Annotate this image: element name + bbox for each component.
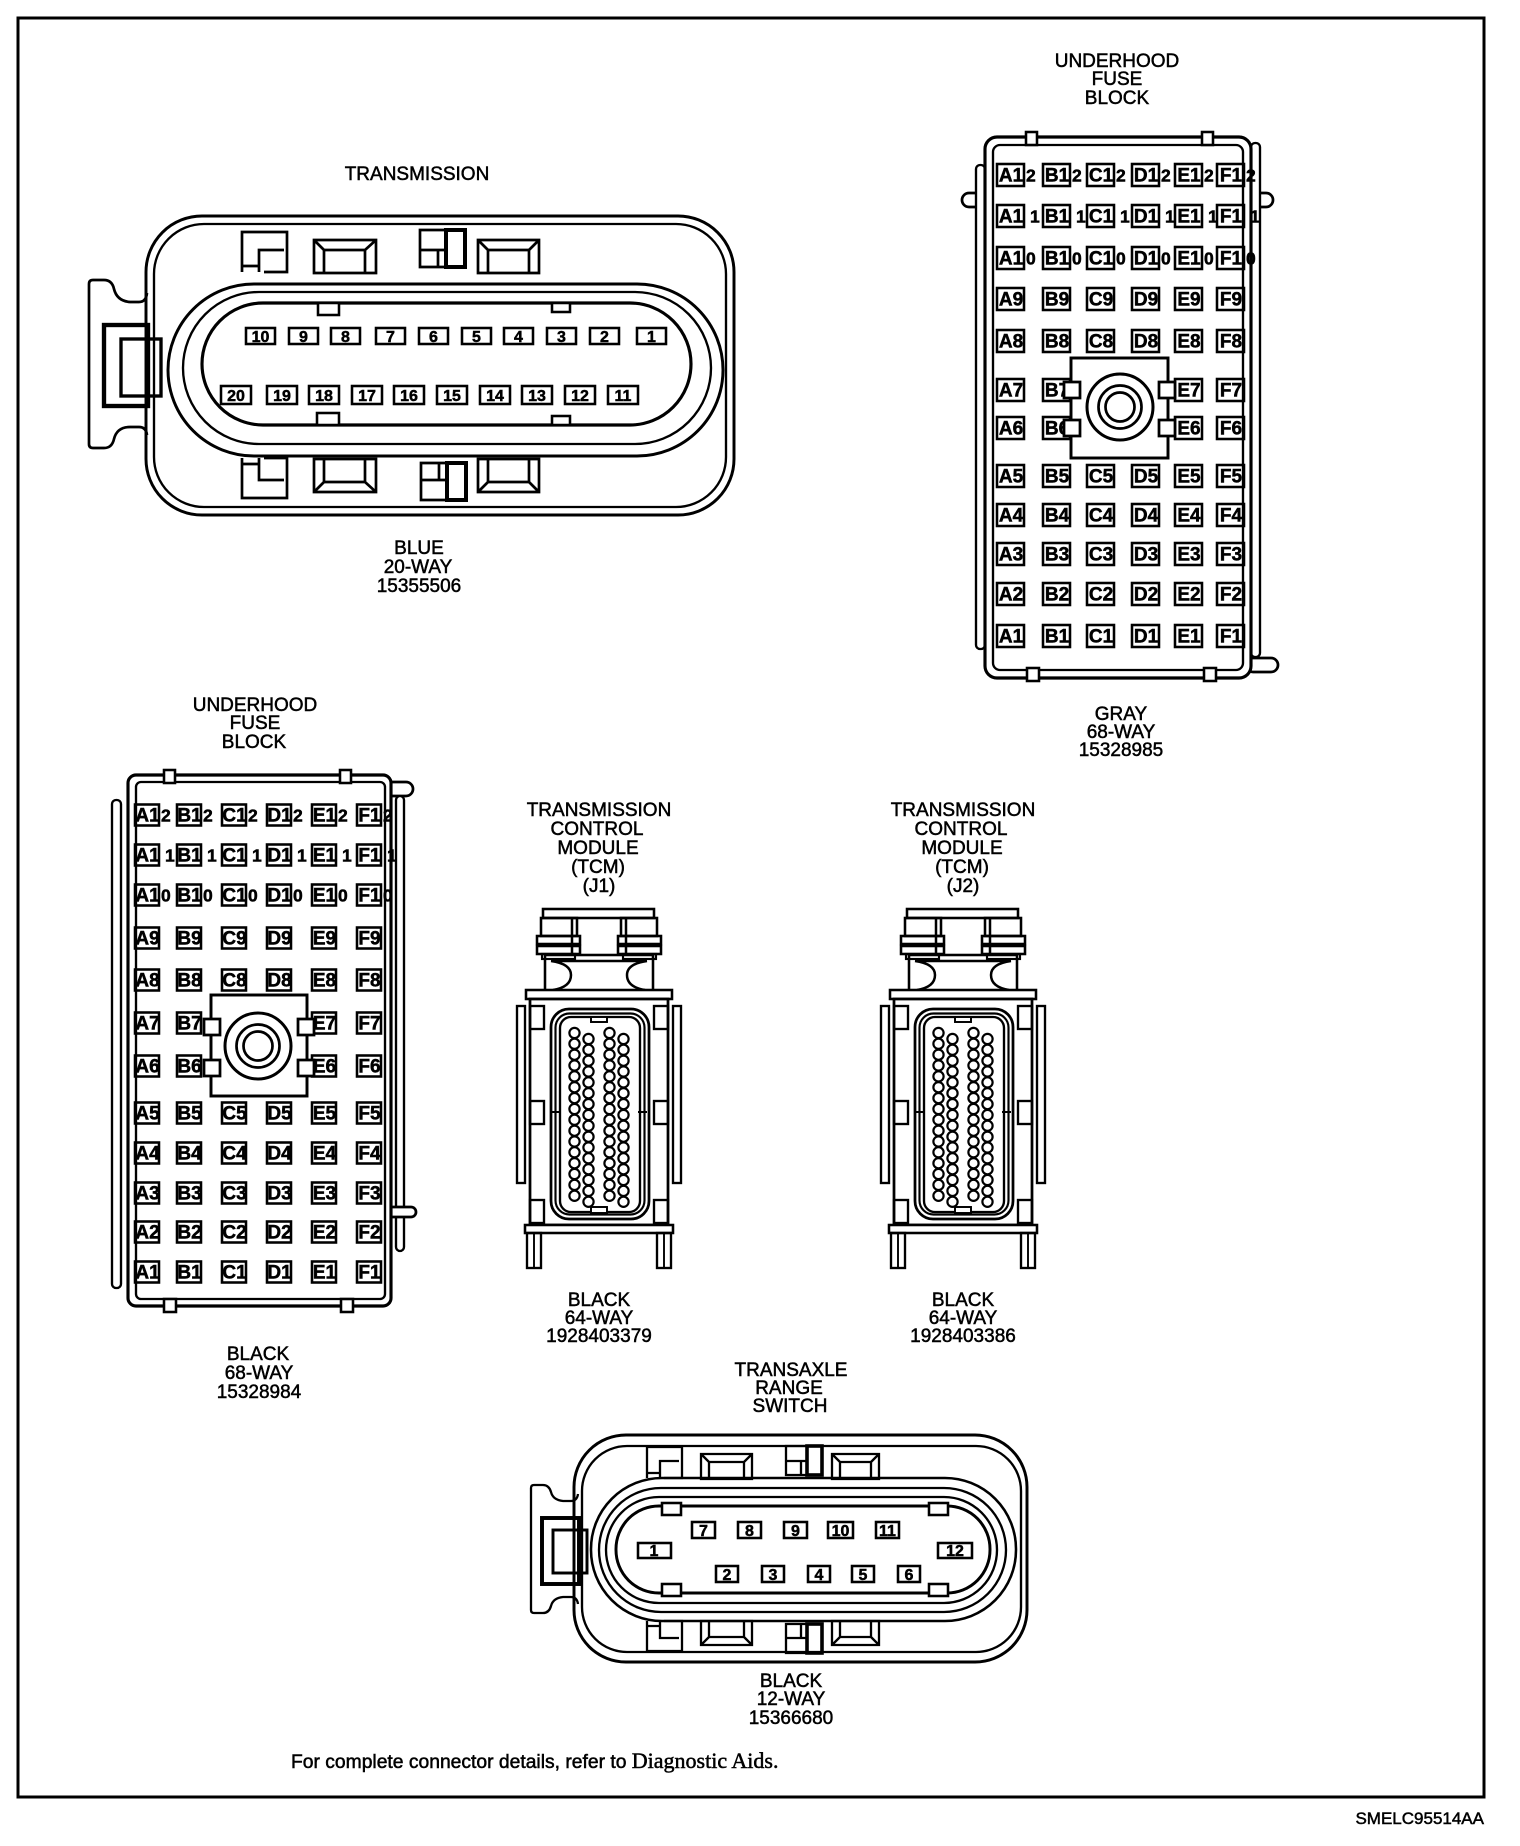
svg-text:E1: E1 [1177,627,1201,648]
svg-text:A1: A1 [999,166,1024,187]
svg-text:2: 2 [383,806,393,826]
svg-text:A3: A3 [135,1184,159,1205]
svg-text:B3: B3 [177,1184,201,1205]
svg-text:8: 8 [745,1523,754,1540]
svg-text:F1: F1 [358,806,381,827]
svg-text:1: 1 [1076,207,1086,227]
svg-text:C1: C1 [222,886,247,907]
svg-text:2: 2 [293,806,303,826]
svg-text:D8: D8 [1134,332,1158,353]
svg-text:BLOCK: BLOCK [222,732,287,753]
svg-text:5: 5 [859,1567,868,1584]
svg-text:B5: B5 [1045,467,1070,488]
svg-text:A8: A8 [999,332,1023,353]
svg-text:D1: D1 [1134,249,1159,270]
svg-text:D1: D1 [267,886,292,907]
svg-text:TRANSMISSION: TRANSMISSION [891,800,1036,821]
svg-text:A2: A2 [999,585,1023,606]
svg-text:For complete connector details: For complete connector details, refer to… [291,1748,778,1773]
svg-text:F1: F1 [1220,249,1243,270]
svg-text:A1: A1 [135,846,160,867]
svg-text:11: 11 [615,388,632,405]
svg-text:2: 2 [338,806,348,826]
svg-text:B1: B1 [177,846,202,867]
svg-text:E3: E3 [313,1184,336,1205]
svg-text:12-WAY: 12-WAY [757,1689,826,1710]
svg-text:2: 2 [161,806,171,826]
svg-text:1: 1 [1120,207,1130,227]
svg-text:2: 2 [1026,166,1036,186]
svg-text:C8: C8 [222,971,246,992]
svg-text:12: 12 [571,388,589,405]
svg-text:1: 1 [207,846,217,866]
svg-text:11: 11 [879,1523,896,1540]
svg-text:2: 2 [1116,166,1126,186]
svg-text:F7: F7 [1220,381,1242,402]
svg-text:B1: B1 [177,806,202,827]
svg-text:E1: E1 [1177,207,1201,228]
svg-text:D2: D2 [1134,585,1158,606]
svg-text:17: 17 [358,388,376,405]
svg-text:0: 0 [1072,249,1082,269]
svg-text:0: 0 [1204,249,1214,269]
svg-text:(J2): (J2) [947,876,980,897]
svg-text:C1: C1 [1089,627,1114,648]
svg-text:B6: B6 [177,1057,201,1078]
svg-text:F6: F6 [1220,419,1242,440]
svg-text:C1: C1 [222,846,247,867]
svg-text:E9: E9 [1177,290,1200,311]
svg-text:D3: D3 [267,1184,291,1205]
svg-text:MODULE: MODULE [557,838,638,859]
svg-text:BLACK: BLACK [227,1344,290,1365]
svg-text:F5: F5 [1220,467,1243,488]
svg-text:E1: E1 [313,846,337,867]
svg-text:A1: A1 [999,249,1024,270]
svg-text:F4: F4 [358,1144,381,1165]
svg-text:D4: D4 [267,1144,292,1165]
svg-text:18: 18 [315,388,333,405]
svg-text:(TCM): (TCM) [935,857,989,878]
svg-text:A1: A1 [135,1263,160,1284]
svg-text:2: 2 [723,1567,732,1584]
svg-text:D2: D2 [267,1223,291,1244]
svg-text:A5: A5 [999,467,1024,488]
svg-text:E2: E2 [1177,585,1200,606]
svg-text:20-WAY: 20-WAY [384,557,453,578]
svg-text:2: 2 [248,806,258,826]
svg-text:0: 0 [161,886,171,906]
svg-text:FUSE: FUSE [1092,69,1143,90]
svg-text:B1: B1 [177,1263,202,1284]
svg-text:A7: A7 [135,1014,159,1035]
svg-text:C1: C1 [1089,166,1114,187]
svg-text:F3: F3 [1220,545,1242,566]
svg-text:A2: A2 [135,1223,159,1244]
svg-text:0: 0 [1116,249,1126,269]
svg-text:A1: A1 [999,207,1024,228]
svg-text:TRANSMISSION: TRANSMISSION [527,800,672,821]
svg-text:15355506: 15355506 [377,576,462,597]
svg-text:7: 7 [386,329,395,346]
svg-text:C1: C1 [1089,207,1114,228]
svg-text:SMELC95514AA: SMELC95514AA [1355,1809,1484,1828]
svg-text:(TCM): (TCM) [571,857,625,878]
svg-text:6: 6 [905,1567,914,1584]
svg-text:B1: B1 [1045,166,1070,187]
svg-text:B8: B8 [177,971,201,992]
svg-text:D5: D5 [267,1104,292,1125]
svg-text:C1: C1 [222,1263,247,1284]
svg-text:A6: A6 [999,419,1023,440]
svg-text:D1: D1 [267,1263,292,1284]
svg-text:BLOCK: BLOCK [1085,88,1150,109]
svg-text:F6: F6 [358,1057,380,1078]
svg-text:E6: E6 [313,1057,336,1078]
svg-text:F5: F5 [358,1104,381,1125]
svg-text:D5: D5 [1134,467,1159,488]
svg-text:D9: D9 [1134,290,1158,311]
svg-text:B1: B1 [1045,249,1070,270]
svg-text:0: 0 [338,886,348,906]
svg-text:A9: A9 [135,929,159,950]
svg-text:D3: D3 [1134,545,1158,566]
svg-text:0: 0 [1026,249,1036,269]
svg-text:B1: B1 [1045,207,1070,228]
svg-text:1: 1 [342,846,352,866]
svg-text:2: 2 [600,329,609,346]
svg-text:1: 1 [297,846,307,866]
svg-text:1: 1 [650,1543,659,1560]
svg-text:A6: A6 [135,1057,159,1078]
svg-text:C1: C1 [222,806,247,827]
svg-text:1: 1 [1030,207,1040,227]
svg-text:D1: D1 [267,806,292,827]
svg-text:19: 19 [273,388,291,405]
svg-text:2: 2 [1246,166,1256,186]
svg-text:A1: A1 [135,886,160,907]
svg-text:D1: D1 [1134,166,1159,187]
svg-text:C5: C5 [222,1104,247,1125]
svg-text:1: 1 [165,846,175,866]
svg-text:B9: B9 [1045,290,1069,311]
svg-text:TRANSMISSION: TRANSMISSION [345,164,490,185]
svg-text:FUSE: FUSE [230,713,281,734]
svg-text:A3: A3 [999,545,1023,566]
svg-text:B9: B9 [177,929,201,950]
svg-text:D1: D1 [1134,207,1159,228]
svg-text:F1: F1 [1220,166,1243,187]
svg-text:E8: E8 [1177,332,1200,353]
svg-text:1: 1 [1165,207,1175,227]
svg-text:7: 7 [699,1523,708,1540]
svg-text:0: 0 [1161,249,1171,269]
svg-text:A9: A9 [999,290,1023,311]
svg-text:F9: F9 [358,929,380,950]
svg-text:B1: B1 [1045,627,1070,648]
svg-text:9: 9 [791,1523,800,1540]
svg-text:0: 0 [383,886,393,906]
svg-text:E1: E1 [1177,166,1201,187]
svg-text:C4: C4 [1089,506,1114,527]
svg-text:3: 3 [769,1567,778,1584]
svg-text:F7: F7 [358,1014,380,1035]
svg-text:10: 10 [832,1523,850,1540]
svg-text:C9: C9 [1089,290,1113,311]
svg-text:B1: B1 [177,886,202,907]
svg-text:68-WAY: 68-WAY [225,1363,294,1384]
svg-text:12: 12 [946,1543,964,1560]
svg-text:E7: E7 [1177,381,1200,402]
svg-text:C8: C8 [1089,332,1113,353]
svg-text:4: 4 [514,329,523,346]
svg-text:F4: F4 [1220,506,1243,527]
svg-text:E2: E2 [313,1223,336,1244]
svg-text:1928403379: 1928403379 [546,1326,652,1347]
svg-text:D9: D9 [267,929,291,950]
svg-text:C9: C9 [222,929,246,950]
svg-text:E1: E1 [313,1263,337,1284]
svg-text:B2: B2 [1045,585,1069,606]
svg-text:D8: D8 [267,971,291,992]
svg-text:E7: E7 [313,1014,336,1035]
svg-text:B3: B3 [1045,545,1069,566]
svg-text:6: 6 [429,329,438,346]
svg-text:B5: B5 [177,1104,202,1125]
svg-text:5: 5 [472,329,481,346]
svg-text:2: 2 [1204,166,1214,186]
svg-text:F1: F1 [358,846,381,867]
svg-text:E4: E4 [313,1144,337,1165]
svg-text:F1: F1 [1220,627,1243,648]
svg-text:1: 1 [1250,207,1260,227]
svg-text:B4: B4 [177,1144,202,1165]
svg-text:C4: C4 [222,1144,247,1165]
svg-text:15328985: 15328985 [1079,740,1164,761]
svg-text:SWITCH: SWITCH [753,1396,828,1417]
svg-text:E5: E5 [313,1104,337,1125]
svg-text:E4: E4 [1177,506,1201,527]
svg-text:B4: B4 [1045,506,1070,527]
svg-text:0: 0 [203,886,213,906]
svg-text:1: 1 [387,846,397,866]
svg-text:F1: F1 [358,886,381,907]
svg-text:C3: C3 [222,1184,246,1205]
svg-text:D1: D1 [1134,627,1159,648]
svg-text:16: 16 [400,388,418,405]
svg-text:A8: A8 [135,971,159,992]
svg-text:1: 1 [647,329,656,346]
svg-text:0: 0 [248,886,258,906]
svg-text:D1: D1 [267,846,292,867]
svg-text:0: 0 [1246,249,1256,269]
svg-text:D4: D4 [1134,506,1159,527]
svg-text:C1: C1 [1089,249,1114,270]
svg-text:C3: C3 [1089,545,1113,566]
svg-text:A1: A1 [135,806,160,827]
svg-text:9: 9 [299,329,308,346]
svg-text:E9: E9 [313,929,336,950]
svg-text:F2: F2 [358,1223,380,1244]
svg-text:CONTROL: CONTROL [915,819,1008,840]
svg-text:F1: F1 [1220,207,1243,228]
svg-text:A4: A4 [999,506,1024,527]
svg-text:13: 13 [528,388,546,405]
svg-text:2: 2 [1161,166,1171,186]
svg-text:E1: E1 [1177,249,1201,270]
svg-text:4: 4 [815,1567,824,1584]
svg-text:MODULE: MODULE [921,838,1002,859]
svg-text:15366680: 15366680 [749,1708,834,1729]
svg-text:E1: E1 [313,806,337,827]
svg-text:F9: F9 [1220,290,1242,311]
svg-text:E1: E1 [313,886,337,907]
svg-text:BLUE: BLUE [394,538,444,559]
svg-text:B8: B8 [1045,332,1069,353]
svg-text:E3: E3 [1177,545,1200,566]
svg-text:2: 2 [1072,166,1082,186]
svg-text:B7: B7 [177,1014,201,1035]
svg-text:A1: A1 [999,627,1024,648]
svg-text:2: 2 [203,806,213,826]
svg-text:15: 15 [443,388,461,405]
svg-text:8: 8 [341,329,350,346]
svg-text:10: 10 [252,329,270,346]
svg-text:E6: E6 [1177,419,1200,440]
svg-text:A5: A5 [135,1104,160,1125]
svg-text:C5: C5 [1089,467,1114,488]
svg-text:15328984: 15328984 [217,1382,302,1403]
svg-text:F1: F1 [358,1263,381,1284]
svg-text:(J1): (J1) [583,876,616,897]
svg-text:F2: F2 [1220,585,1242,606]
svg-text:1928403386: 1928403386 [910,1326,1016,1347]
svg-text:C2: C2 [222,1223,246,1244]
svg-text:14: 14 [486,388,504,405]
svg-text:CONTROL: CONTROL [551,819,644,840]
svg-text:F8: F8 [358,971,380,992]
svg-text:A7: A7 [999,381,1023,402]
svg-text:E5: E5 [1177,467,1201,488]
svg-text:20: 20 [227,388,245,405]
svg-text:0: 0 [293,886,303,906]
svg-text:1: 1 [252,846,262,866]
svg-text:C2: C2 [1089,585,1113,606]
svg-text:F8: F8 [1220,332,1242,353]
svg-text:F3: F3 [358,1184,380,1205]
svg-text:A4: A4 [135,1144,160,1165]
svg-text:B2: B2 [177,1223,201,1244]
svg-text:3: 3 [557,329,566,346]
svg-text:E8: E8 [313,971,336,992]
